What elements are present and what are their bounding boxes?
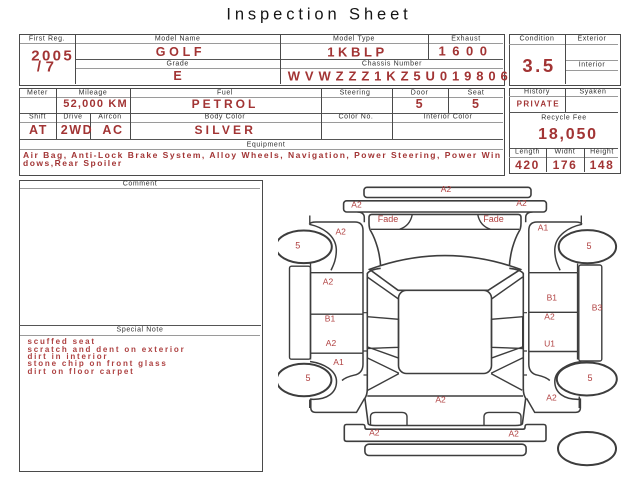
svg-text:5: 5	[587, 373, 592, 383]
svg-text:A2: A2	[544, 312, 555, 322]
svg-text:U1: U1	[544, 339, 555, 349]
svg-text:A2: A2	[546, 392, 557, 402]
svg-text:A2: A2	[323, 276, 334, 286]
svg-text:B3: B3	[592, 302, 603, 312]
svg-text:A2: A2	[335, 227, 346, 237]
svg-text:A2: A2	[435, 394, 446, 404]
svg-text:A2: A2	[326, 338, 337, 348]
svg-text:Fade: Fade	[378, 214, 399, 224]
svg-text:A2: A2	[369, 427, 380, 437]
svg-text:A2: A2	[508, 429, 519, 439]
svg-text:A1: A1	[538, 223, 549, 233]
svg-text:B1: B1	[547, 293, 558, 303]
svg-text:5: 5	[586, 241, 591, 251]
svg-text:Fade: Fade	[483, 214, 504, 224]
svg-text:A2: A2	[441, 184, 452, 194]
svg-text:5: 5	[305, 373, 310, 383]
svg-text:B1: B1	[325, 313, 336, 323]
svg-text:A2: A2	[351, 200, 362, 210]
svg-text:A2: A2	[516, 198, 527, 208]
svg-text:A1: A1	[333, 357, 344, 367]
svg-text:5: 5	[295, 240, 300, 250]
